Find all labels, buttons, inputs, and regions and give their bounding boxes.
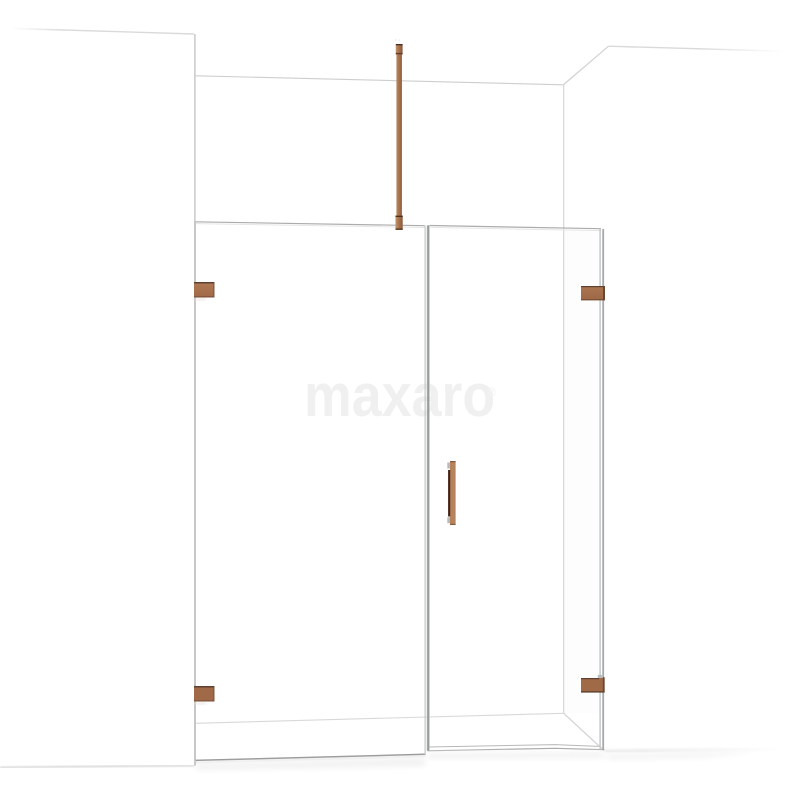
svg-text:maxaro: maxaro: [304, 362, 495, 429]
svg-text:®: ®: [488, 387, 497, 399]
